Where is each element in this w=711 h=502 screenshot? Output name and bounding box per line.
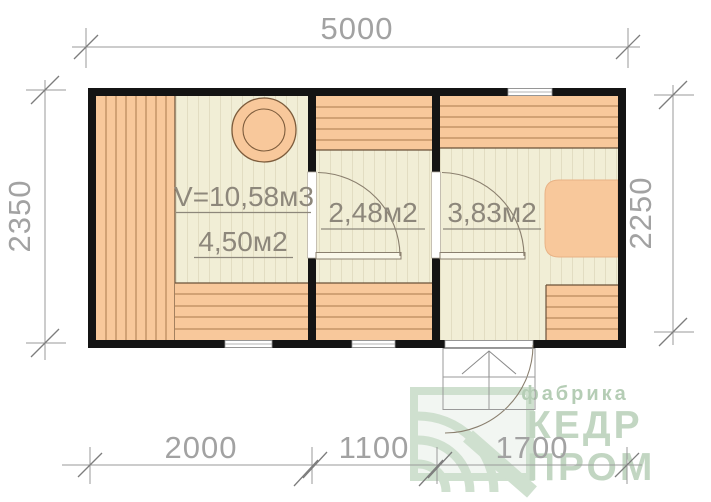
- dimension-bottom-label-3: 1700: [496, 430, 569, 465]
- dimension-left: 2350: [2, 76, 66, 360]
- dimension-right: 2250: [623, 81, 694, 346]
- dimension-top-label: 5000: [321, 11, 394, 46]
- washing-room-top-bench: [316, 96, 432, 150]
- stove-icon: [232, 98, 296, 162]
- dimension-bottom-label-2: 1100: [339, 430, 410, 465]
- wall-left: [88, 88, 96, 348]
- window-bottom-steam: [225, 341, 272, 348]
- rest-room-area-label: 3,83м2: [447, 197, 536, 228]
- wall-partition-1-upper: [308, 96, 316, 172]
- wall-partition-2-upper: [432, 96, 440, 172]
- window-top-rest: [508, 89, 552, 96]
- dimension-bottom-label-1: 2000: [165, 430, 238, 465]
- steam-room-bottom-bench: [175, 283, 308, 340]
- dimension-left-label: 2350: [2, 180, 37, 253]
- wall-partition-2-lower: [432, 258, 440, 340]
- rest-room-corner-bench: [546, 285, 618, 340]
- rest-room-top-bench: [440, 96, 618, 148]
- dimension-top: 5000: [72, 11, 640, 68]
- steam-room-area-label: 4,50м2: [198, 226, 287, 257]
- dimension-right-label: 2250: [623, 177, 658, 250]
- window-bottom-wash: [352, 341, 395, 348]
- table: [545, 180, 618, 257]
- floor-plan-page: фабрика КЕДР ПРОМ: [0, 0, 711, 502]
- watermark-factory-text: фабрика: [521, 383, 629, 405]
- wall-partition-1-lower: [308, 258, 316, 340]
- floor-plan-drawing: фабрика КЕДР ПРОМ: [0, 0, 711, 502]
- washing-room-area-label: 2,48м2: [328, 197, 417, 228]
- entrance-arrow: [462, 351, 516, 377]
- washing-room-bottom-bench: [316, 283, 432, 340]
- steam-room-side-planks: [96, 96, 175, 340]
- steam-room-volume-label: V=10,58м3: [174, 181, 314, 212]
